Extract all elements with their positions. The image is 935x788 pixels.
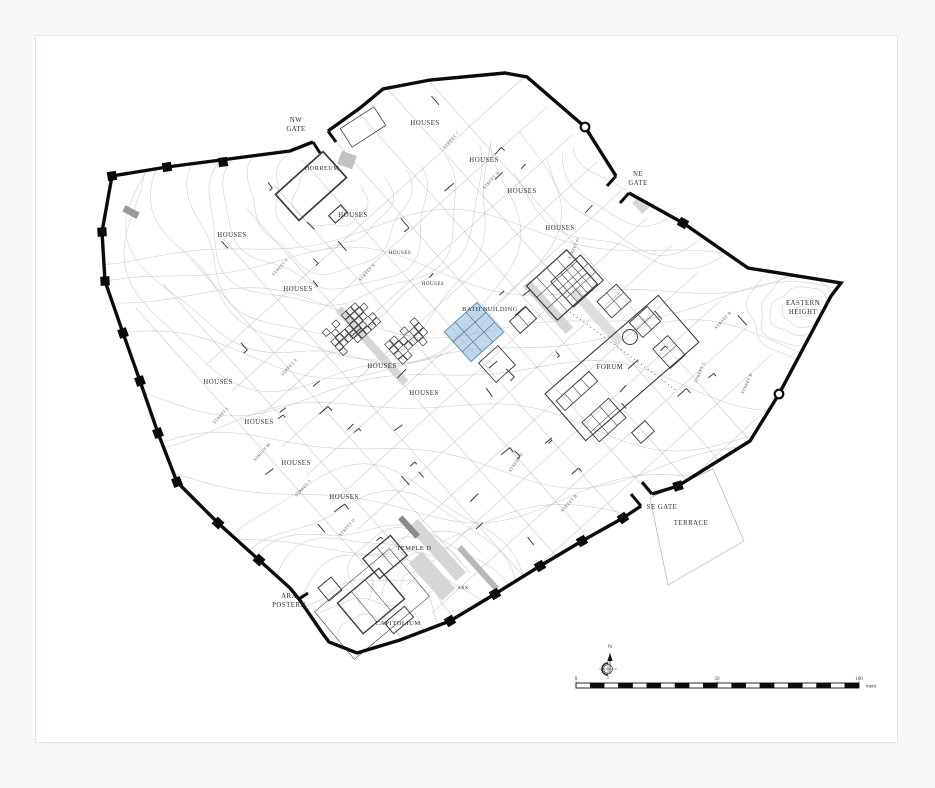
- cosa-site-plan-canvas: NWGATEHOUSESHOUSESHOUSESHORREUMNEGATEHOU…: [0, 0, 935, 788]
- label-street: STREET 5: [693, 362, 706, 383]
- label-houses: HOUSES: [507, 188, 536, 195]
- wall-tower: [117, 327, 129, 339]
- wall-tower: [218, 157, 228, 167]
- label-terrace: TERRACE: [674, 520, 708, 527]
- wall-tower: [97, 227, 107, 237]
- label-temple-d: TEMPLE D: [396, 545, 431, 552]
- label-houses: HOUSES: [203, 379, 232, 386]
- label-bath-building: BATH BUILDING: [462, 306, 518, 313]
- label-houses: HOUSES: [338, 212, 367, 219]
- label-street: STREET B: [560, 493, 578, 513]
- paved-areas: [122, 151, 649, 601]
- label-se-gate: SE GATE: [647, 504, 678, 511]
- wall-tower: [162, 162, 173, 173]
- label-houses: HOUSES: [283, 286, 312, 293]
- scale-bar: 050100metri: [575, 677, 877, 690]
- label-street: STREET B: [714, 310, 732, 330]
- label-houses: HOUSES: [329, 494, 358, 501]
- label-street: STREET M: [252, 442, 271, 462]
- label-eastern-height: EASTERNHEIGHT: [786, 300, 820, 316]
- label-houses: HOUSES: [409, 390, 438, 397]
- label-nw-gate: NWGATE: [286, 117, 305, 133]
- label-arx: ARX: [457, 585, 468, 590]
- label-houses: HOUSES: [217, 232, 246, 239]
- terrace-outline: [650, 469, 744, 585]
- figure-background: NWGATEHOUSESHOUSESHOUSESHORREUMNEGATEHOU…: [0, 0, 935, 788]
- wall-tower: [107, 171, 118, 182]
- scale-unit-label: metri: [866, 685, 877, 690]
- label-ne-gate: NEGATE: [628, 171, 647, 187]
- label-forum: FORUM: [597, 364, 624, 371]
- wall-tower: [100, 276, 110, 286]
- label-houses: HOUSES: [244, 419, 273, 426]
- label-capitolium: CAPITOLIUM: [375, 620, 421, 627]
- label-houses: HOUSES: [469, 157, 498, 164]
- north-label: N: [608, 644, 612, 650]
- label-street: STREET L: [212, 405, 230, 425]
- label-houses: HOUSES: [281, 460, 310, 467]
- round-tower: [775, 390, 784, 399]
- label-houses: HOUSES: [367, 363, 396, 370]
- wall-tower: [134, 375, 146, 387]
- label-street: STREET D: [507, 452, 524, 473]
- label-street: STREET N: [482, 170, 501, 190]
- label-houses: HOUSES: [410, 120, 439, 127]
- street-grid: [136, 62, 796, 668]
- label-houses: HOUSES: [422, 282, 444, 287]
- round-tower: [581, 123, 590, 132]
- label-houses: HOUSES: [545, 225, 574, 232]
- label-horreum: HORREUM: [305, 165, 339, 172]
- label-street: STREET B: [740, 372, 753, 394]
- label-street: STREET 7: [442, 130, 460, 149]
- wall-tower: [152, 427, 164, 439]
- label-houses: HOUSES: [389, 251, 411, 256]
- label-street: STREET 4: [280, 357, 298, 377]
- label-street: STREET N: [358, 262, 377, 282]
- north-arrow: N: [599, 644, 617, 679]
